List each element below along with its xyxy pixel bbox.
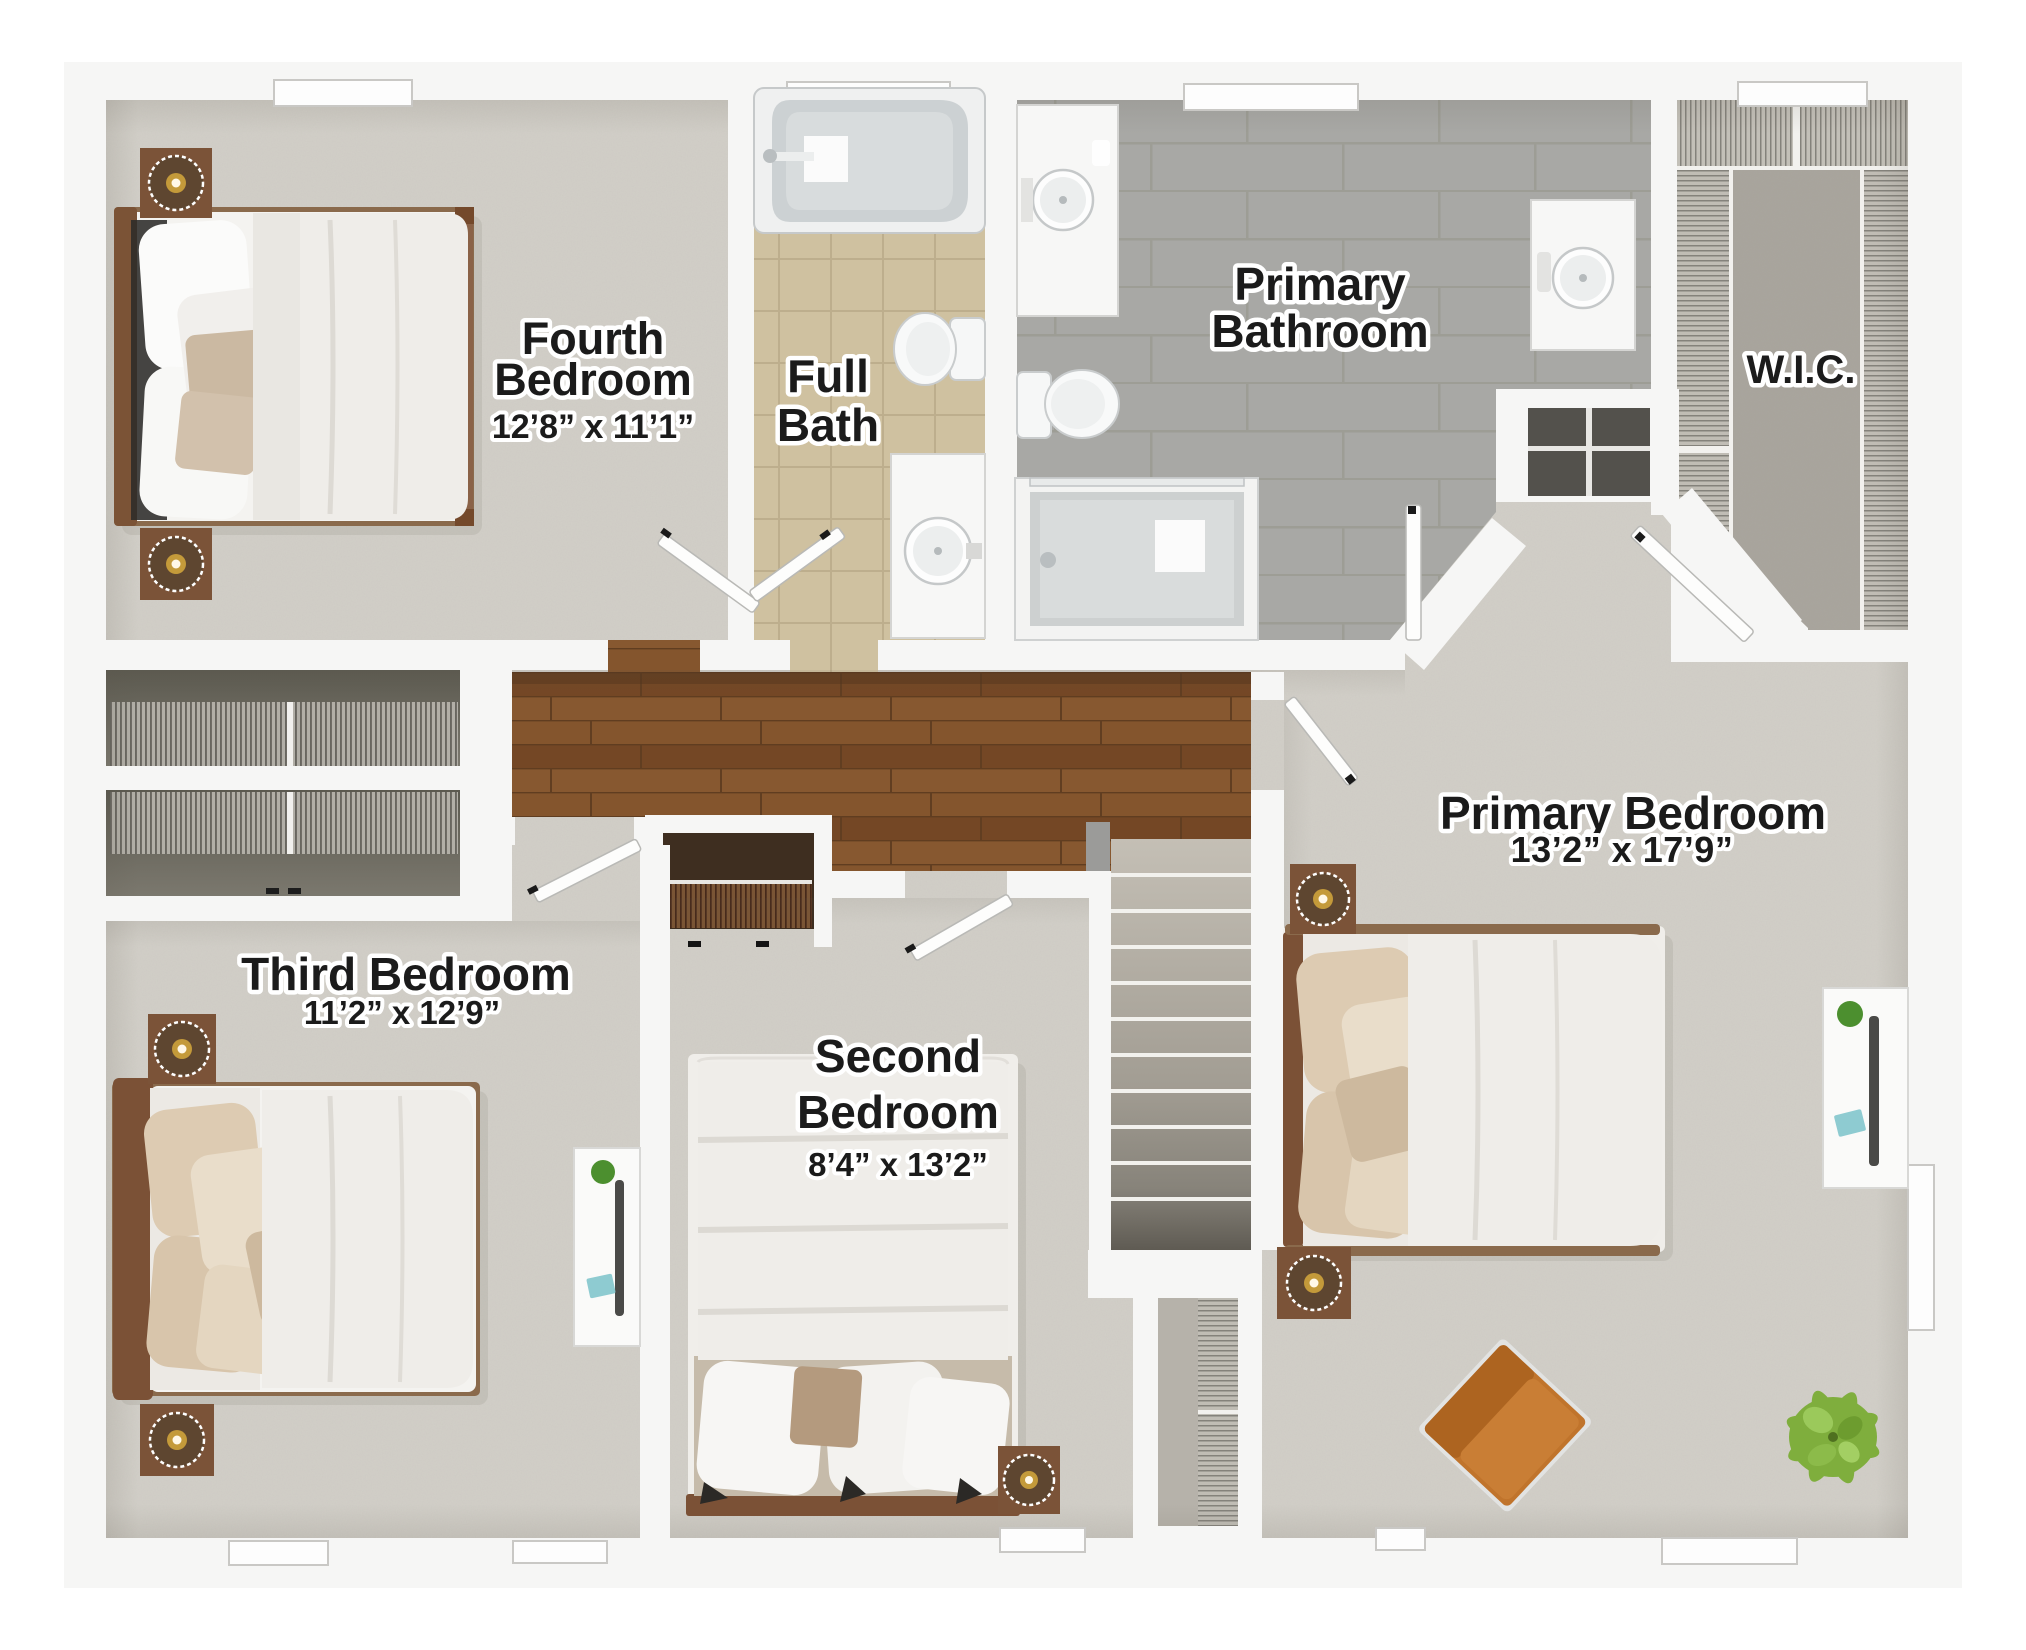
svg-text:Full: Full — [787, 350, 869, 402]
svg-text:12’8” x 11’1”: 12’8” x 11’1” — [492, 408, 694, 446]
svg-text:Third Bedroom: Third Bedroom — [241, 948, 571, 1000]
svg-text:Bedroom: Bedroom — [797, 1086, 999, 1138]
svg-text:Bathroom: Bathroom — [1211, 305, 1428, 357]
svg-text:W.I.C.: W.I.C. — [1747, 348, 1856, 392]
svg-text:13’2” x 17’9”: 13’2” x 17’9” — [1511, 829, 1734, 870]
svg-text:Primary: Primary — [1234, 258, 1406, 310]
svg-text:Second: Second — [815, 1030, 981, 1082]
svg-text:8’4” x 13’2”: 8’4” x 13’2” — [808, 1146, 988, 1183]
svg-text:Bedroom: Bedroom — [494, 354, 692, 405]
svg-text:Bath: Bath — [777, 399, 879, 451]
svg-text:11’2” x 12’9”: 11’2” x 12’9” — [304, 994, 500, 1031]
